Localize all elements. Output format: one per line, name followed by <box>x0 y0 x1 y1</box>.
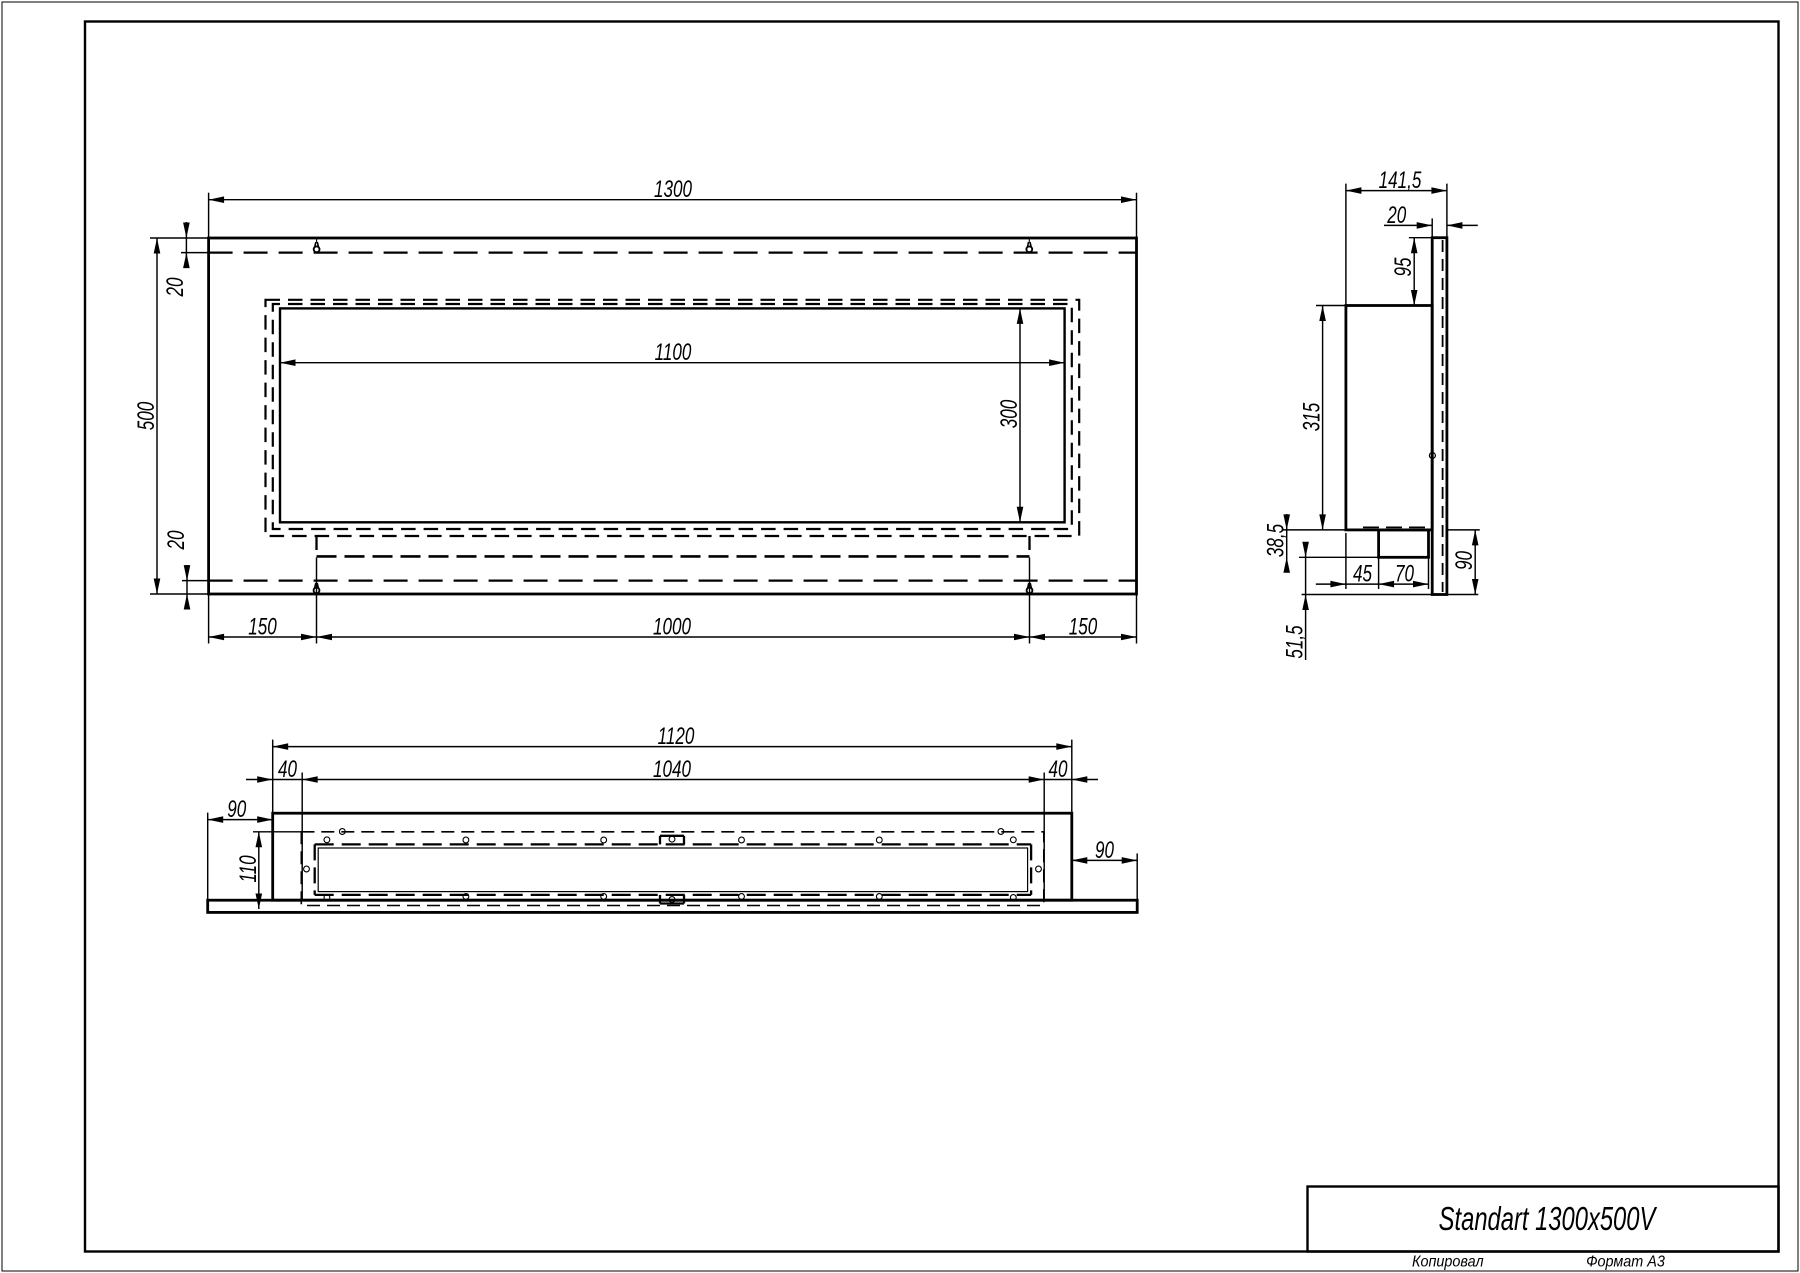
svg-text:110: 110 <box>235 855 261 883</box>
svg-text:300: 300 <box>996 399 1022 428</box>
svg-text:150: 150 <box>248 614 277 640</box>
svg-text:1040: 1040 <box>653 756 691 782</box>
svg-text:1300: 1300 <box>654 177 692 203</box>
svg-text:150: 150 <box>1069 614 1098 640</box>
svg-text:38,5: 38,5 <box>1263 523 1289 557</box>
svg-text:51,5: 51,5 <box>1282 625 1308 659</box>
svg-text:90: 90 <box>227 796 246 822</box>
svg-text:141,5: 141,5 <box>1379 167 1422 193</box>
svg-text:20: 20 <box>163 530 189 550</box>
svg-text:70: 70 <box>1395 561 1414 587</box>
svg-text:90: 90 <box>1452 551 1478 570</box>
svg-text:1120: 1120 <box>658 723 695 749</box>
svg-text:40: 40 <box>278 756 297 782</box>
svg-text:40: 40 <box>1049 756 1068 782</box>
svg-text:315: 315 <box>1299 402 1325 431</box>
svg-text:20: 20 <box>162 277 188 297</box>
svg-text:Копировал: Копировал <box>1412 1253 1484 1271</box>
svg-text:Формат А3: Формат А3 <box>1586 1253 1665 1271</box>
svg-text:20: 20 <box>1386 202 1406 228</box>
svg-text:1000: 1000 <box>653 614 691 640</box>
svg-text:Standart 1300x500V: Standart 1300x500V <box>1439 1201 1658 1238</box>
svg-text:500: 500 <box>133 401 159 430</box>
svg-text:45: 45 <box>1353 561 1372 587</box>
svg-text:95: 95 <box>1391 257 1417 276</box>
svg-text:1100: 1100 <box>655 340 692 366</box>
svg-text:90: 90 <box>1095 837 1114 863</box>
